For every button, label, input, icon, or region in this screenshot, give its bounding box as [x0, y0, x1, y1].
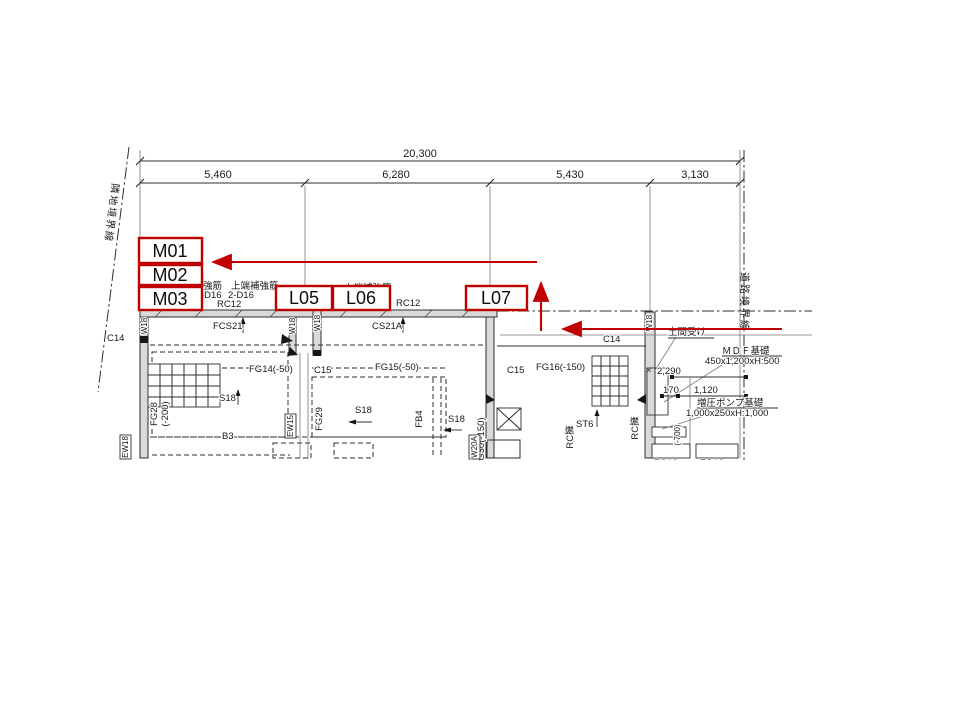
crossed-box — [497, 408, 521, 430]
label-c15-b: C15 — [507, 365, 524, 376]
label-s18-c: S18 — [448, 414, 465, 425]
label-doma-uke: 土間受け — [668, 326, 706, 338]
label-st6: ST6 — [576, 419, 593, 430]
label-c14-mid: C14 — [603, 334, 620, 345]
label-fg13-a: FG13 — [654, 458, 678, 469]
label-fg14: FG14(-50) — [249, 364, 293, 375]
callout-l05: L05 — [276, 286, 332, 310]
label-w18-a: W18 — [140, 317, 149, 334]
label-fg16: FG16(-150) — [536, 362, 585, 373]
dim-total: 20,300 — [403, 148, 437, 160]
callout-l06: L06 — [333, 286, 390, 310]
callout-m01: M01 — [139, 238, 202, 263]
label-rc12-a: RC12 — [217, 299, 241, 310]
dimension-chain: 20,300 5,460 6,280 5,430 3,130 — [136, 148, 744, 187]
label-depth-700: (-700) — [673, 424, 682, 446]
label-fb4: FB4 — [414, 410, 425, 427]
label-ew15: EW15 — [286, 415, 295, 437]
label-rc12-b: RC12 — [396, 298, 420, 309]
label-dim-2290: 2,290 — [657, 366, 681, 377]
dim-seg1: 5,460 — [204, 169, 232, 181]
waffle-grid-left — [148, 364, 220, 407]
callout-m01-label: M01 — [152, 241, 187, 261]
label-w18-b: W18 — [288, 317, 297, 334]
callout-m02-label: M02 — [152, 265, 187, 285]
label-fg13-b: FG13 — [700, 458, 724, 469]
label-pump-size: 1,000x250xH:1,000 — [686, 408, 768, 419]
callout-m03-label: M03 — [152, 289, 187, 309]
label-c14-left: C14 — [107, 333, 124, 344]
label-fg15: FG15(-50) — [375, 362, 419, 373]
callout-l06-label: L06 — [346, 288, 376, 308]
foundation-plan-drawing: 20,300 5,460 6,280 5,430 3,130 隣地境界線 道路境… — [0, 0, 960, 720]
label-fg28: FG28 — [149, 402, 160, 426]
callout-l07-label: L07 — [481, 288, 511, 308]
dim-seg4: 3,130 — [681, 169, 709, 181]
label-ew18: EW18 — [121, 436, 130, 458]
label-s18-a: S18 — [219, 393, 236, 404]
boundary-left-label: 隣地境界線 — [102, 183, 122, 244]
callout-l07: L07 — [466, 286, 527, 310]
label-mdf-size: 450x1,200xH:500 — [705, 356, 779, 367]
dim-seg2: 6,280 — [382, 169, 410, 181]
label-cs21a: CS21A — [372, 321, 403, 332]
label-w20a: W20A — [470, 435, 479, 457]
callout-m02: M02 — [139, 265, 202, 285]
boundary-right-label: 道路境界線 — [738, 272, 751, 332]
label-b3: B3 — [222, 431, 234, 442]
callout-m03: M03 — [139, 287, 202, 310]
slide-canvas: 20,300 5,460 6,280 5,430 3,130 隣地境界線 道路境… — [0, 0, 960, 720]
label-dim-170: 170 — [663, 385, 679, 396]
boundary-left: 隣地境界線 — [98, 147, 129, 392]
label-fcs21: FCS21 — [213, 321, 243, 332]
plan-area: 20,300 5,460 6,280 5,430 3,130 隣地境界線 道路境… — [98, 147, 812, 469]
label-fg29: FG29 — [314, 407, 325, 431]
label-rc-wall-a: RC擁 — [564, 425, 576, 449]
callout-l05-label: L05 — [289, 288, 319, 308]
label-fg28-depth: (-200) — [160, 401, 171, 426]
label-c15-a: C15 — [314, 365, 331, 376]
waffle-grid-right — [592, 356, 628, 406]
label-w18-c: W18 — [313, 314, 322, 331]
label-rc-wall-b: RC擁 — [629, 416, 641, 440]
label-dim-1120: 1,120 — [694, 385, 718, 396]
label-s18-b: S18 — [355, 405, 372, 416]
dim-seg3: 5,430 — [556, 169, 584, 181]
